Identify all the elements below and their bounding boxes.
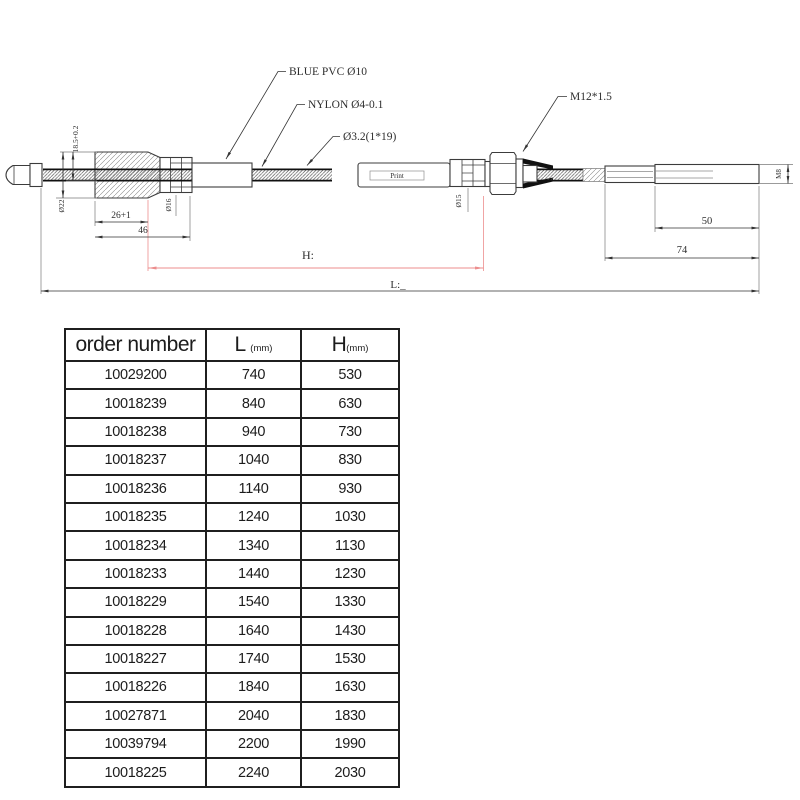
l-value-cell: 1540 xyxy=(206,588,301,616)
washer xyxy=(516,159,523,188)
h-value-cell: 930 xyxy=(301,475,399,503)
l-value-cell: 940 xyxy=(206,418,301,446)
order-number-cell: 10018234 xyxy=(65,531,206,559)
h-value-cell: 1530 xyxy=(301,645,399,673)
leader-lines xyxy=(226,72,567,167)
order-number-cell: 10018227 xyxy=(65,645,206,673)
order-number-cell: 10029200 xyxy=(65,361,206,389)
dim-74: 74 xyxy=(677,245,688,256)
table-row: 10029200 740 530 xyxy=(65,361,399,389)
h-value-cell: 730 xyxy=(301,418,399,446)
table-row: 10018228 1640 1430 xyxy=(65,617,399,645)
l-value-cell: 1740 xyxy=(206,645,301,673)
inner-cable-right xyxy=(537,169,605,182)
l-value-cell: 740 xyxy=(206,361,301,389)
order-number-cell: 10018226 xyxy=(65,673,206,701)
dim-h: H: xyxy=(302,248,314,262)
order-number-cell: 10018236 xyxy=(65,475,206,503)
rod-shank xyxy=(605,166,655,183)
table-row: 10039794 2200 1990 xyxy=(65,730,399,758)
table-row: 10018227 1740 1530 xyxy=(65,645,399,673)
callout-nylon: NYLON Ø4-0.1 xyxy=(308,99,384,111)
dim-sleeve-od: Ø15 xyxy=(454,194,463,207)
cable-drawing: BLUE PVC Ø10 NYLON Ø4-0.1 Ø3.2(1*19) M12… xyxy=(0,0,800,320)
col-header-order-number: order number xyxy=(65,329,206,361)
table-row: 10018239 840 630 xyxy=(65,389,399,417)
h-value-cell: 2030 xyxy=(301,758,399,786)
l-value-cell: 1140 xyxy=(206,475,301,503)
col-header-h-unit: (mm) xyxy=(346,343,368,354)
dim-50: 50 xyxy=(702,216,713,227)
table-row: 10018236 1140 930 xyxy=(65,475,399,503)
order-number-cell: 10027871 xyxy=(65,702,206,730)
table-row: 10018226 1840 1630 xyxy=(65,673,399,701)
print-label: Print xyxy=(390,172,404,180)
order-number-cell: 10018229 xyxy=(65,588,206,616)
dim-46: 46 xyxy=(138,226,148,236)
callout-blue-pvc: BLUE PVC Ø10 xyxy=(289,66,367,78)
table-row: 10018235 1240 1030 xyxy=(65,503,399,531)
table-row: 10018238 940 730 xyxy=(65,418,399,446)
hex-nut xyxy=(490,153,516,195)
bullet-collar xyxy=(30,164,42,187)
order-number-cell: 10018238 xyxy=(65,418,206,446)
h-value-cell: 630 xyxy=(301,389,399,417)
neck xyxy=(485,162,490,187)
table-row: 10018229 1540 1330 xyxy=(65,588,399,616)
h-value-cell: 530 xyxy=(301,361,399,389)
dim-l: L:_ xyxy=(390,279,406,291)
l-value-cell: 2200 xyxy=(206,730,301,758)
l-value-cell: 1840 xyxy=(206,673,301,701)
order-number-cell: 10018233 xyxy=(65,560,206,588)
order-table: order number L (mm) H(mm) 10029200 740 5… xyxy=(64,328,400,788)
table-row: 10018234 1340 1130 xyxy=(65,531,399,559)
order-number-cell: 10039794 xyxy=(65,730,206,758)
dim-housing-height: 18.5+0.2 xyxy=(71,125,80,152)
table-row: 10018237 1040 830 xyxy=(65,446,399,474)
threaded-rod xyxy=(655,165,759,184)
h-value-cell: 830 xyxy=(301,446,399,474)
inner-cable xyxy=(43,169,332,181)
dim-connector-od: Ø16 xyxy=(164,198,173,211)
h-value-cell: 1030 xyxy=(301,503,399,531)
swage-ferrule xyxy=(523,166,537,183)
order-number-cell: 10018228 xyxy=(65,617,206,645)
order-number-cell: 10018237 xyxy=(65,446,206,474)
l-value-cell: 1340 xyxy=(206,531,301,559)
h-extension-lines xyxy=(148,196,484,271)
h-value-cell: 1330 xyxy=(301,588,399,616)
table-row: 10027871 2040 1830 xyxy=(65,702,399,730)
col-header-h: H(mm) xyxy=(301,329,399,361)
h-value-cell: 1230 xyxy=(301,560,399,588)
l-value-cell: 1440 xyxy=(206,560,301,588)
table-row: 10018233 1440 1230 xyxy=(65,560,399,588)
col-header-l: L (mm) xyxy=(206,329,301,361)
callout-thread: M12*1.5 xyxy=(570,91,612,103)
dim-rod-thread: M8 xyxy=(775,169,783,179)
order-number-cell: 10018225 xyxy=(65,758,206,786)
table-row: 10018225 2240 2030 xyxy=(65,758,399,786)
l-value-cell: 1040 xyxy=(206,446,301,474)
h-value-cell: 1830 xyxy=(301,702,399,730)
dim-housing-od: Ø22 xyxy=(57,199,66,212)
bullet-end xyxy=(6,166,30,185)
callout-cable-strand: Ø3.2(1*19) xyxy=(343,131,397,143)
page: { "drawing": { "callouts": { "blue_pvc":… xyxy=(0,0,800,800)
h-value-cell: 1430 xyxy=(301,617,399,645)
l-value-cell: 2240 xyxy=(206,758,301,786)
h-value-cell: 1130 xyxy=(301,531,399,559)
print-sleeve xyxy=(358,163,450,187)
h-value-cell: 1630 xyxy=(301,673,399,701)
l-value-cell: 1640 xyxy=(206,617,301,645)
h-value-cell: 1990 xyxy=(301,730,399,758)
l-value-cell: 840 xyxy=(206,389,301,417)
pvc-sleeve xyxy=(192,163,252,187)
dim-26: 26+1 xyxy=(111,211,131,221)
col-header-l-unit: (mm) xyxy=(250,343,272,354)
l-value-cell: 2040 xyxy=(206,702,301,730)
order-number-cell: 10018239 xyxy=(65,389,206,417)
order-number-cell: 10018235 xyxy=(65,503,206,531)
table-header-row: order number L (mm) H(mm) xyxy=(65,329,399,361)
l-value-cell: 1240 xyxy=(206,503,301,531)
